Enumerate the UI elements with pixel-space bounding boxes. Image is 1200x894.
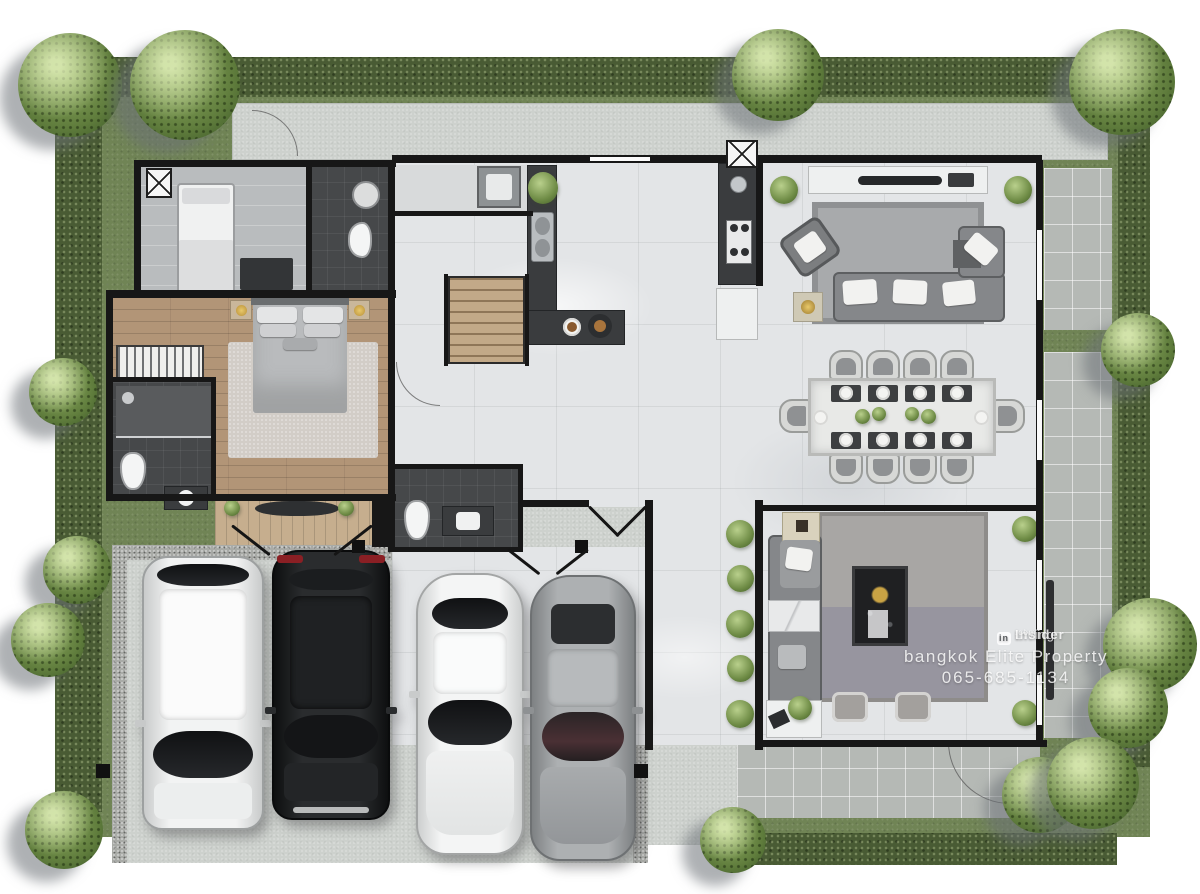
bed-headboard: [251, 297, 349, 305]
plate: [950, 433, 964, 447]
front-trim: [293, 807, 369, 814]
hedge-left: [55, 57, 102, 812]
side-mirror: [632, 707, 643, 714]
side-mirror: [386, 707, 397, 714]
roof: [433, 632, 506, 694]
carport-edge-left: [112, 545, 127, 863]
wall: [106, 290, 396, 298]
burner: [730, 248, 738, 256]
pouf: [895, 692, 931, 722]
bed-pillow: [303, 307, 343, 323]
tree: [43, 536, 111, 604]
windshield: [542, 712, 625, 761]
tree: [29, 358, 97, 426]
window: [1037, 400, 1042, 460]
deck-bench: [255, 501, 339, 516]
wall: [134, 160, 141, 297]
maid-bed-blanket: [179, 240, 233, 293]
sofa-cushion: [942, 279, 976, 306]
taillight: [359, 555, 385, 563]
table-plant: [872, 407, 886, 421]
bar-sink: [730, 176, 747, 193]
powder-basin: [456, 512, 480, 530]
tree: [732, 29, 824, 121]
tree: [18, 33, 122, 137]
tree: [700, 807, 766, 873]
plate: [950, 386, 964, 400]
wall: [755, 500, 763, 750]
wall-plant: [1012, 516, 1038, 542]
carport-pillar: [96, 764, 110, 778]
shower-head: [122, 392, 134, 404]
taillight: [277, 555, 303, 563]
plate: [839, 386, 853, 400]
planter-plant: [726, 520, 754, 548]
side-mirror: [523, 707, 534, 714]
staircase: [448, 276, 525, 364]
tree: [11, 603, 85, 677]
living-insider-logo-icon: in: [997, 632, 1011, 645]
wall: [392, 155, 1042, 163]
plate: [876, 386, 890, 400]
tree: [1047, 737, 1139, 829]
dining-chair: [829, 454, 863, 484]
hood: [284, 763, 378, 801]
sofa-cushion: [892, 279, 927, 305]
dining-chair: [903, 350, 937, 380]
burner: [741, 224, 749, 232]
wall: [762, 505, 1042, 511]
roof: [547, 649, 619, 706]
table-plant: [905, 407, 919, 421]
sunroof: [551, 604, 615, 644]
tree: [25, 791, 103, 869]
wall-plant: [1012, 700, 1038, 726]
dining-chair-end: [779, 399, 811, 433]
planter-plant: [727, 565, 754, 592]
roof: [290, 596, 373, 709]
wall: [518, 464, 523, 552]
table-plant: [921, 409, 936, 424]
floor-plan: inLiving Insider.com bangkok Elite Prope…: [0, 0, 1200, 894]
tree: [1069, 29, 1175, 135]
wall: [106, 290, 113, 501]
dining-chair: [940, 350, 974, 380]
kitchen-cabinet: [716, 288, 758, 340]
family-art-detail: [868, 610, 888, 638]
dining-chair-end: [993, 399, 1025, 433]
watermark-phone: 065-685-1134: [900, 668, 1112, 688]
wardrobe: [116, 345, 204, 381]
kitchen-plant: [528, 172, 558, 204]
tree: [130, 30, 240, 140]
bed-pillow: [260, 324, 296, 337]
tree: [1101, 313, 1175, 387]
ac-unit: [146, 168, 172, 198]
powder-toilet: [404, 500, 430, 540]
planter-plant: [726, 700, 754, 728]
silver-sedan: [530, 575, 636, 861]
nightstand-lamp: [236, 305, 247, 316]
plate: [913, 433, 927, 447]
dining-chair: [903, 454, 937, 484]
watermark-line2: bangkok Elite Property: [900, 647, 1112, 667]
window: [1037, 560, 1042, 630]
kitchen-sink-basin: [535, 239, 550, 257]
plate: [876, 433, 890, 447]
kitchen-sink-basin: [535, 217, 550, 235]
wall: [106, 494, 396, 501]
ensuite-toilet: [120, 452, 146, 490]
wall: [211, 377, 216, 501]
window: [1037, 230, 1042, 300]
kitchen-food: [594, 320, 606, 332]
window: [590, 157, 650, 161]
side-mirror: [265, 707, 276, 714]
dining-chair: [866, 350, 900, 380]
deck-plant: [338, 500, 354, 516]
wall: [134, 160, 396, 167]
black-suv: [272, 550, 390, 820]
carport-pillar: [634, 764, 648, 778]
watermark-brand: inLiving Insider.com: [900, 628, 1112, 645]
pouf: [832, 692, 868, 722]
sofa-cushion: [785, 546, 814, 571]
plate: [839, 433, 853, 447]
wall: [755, 740, 1047, 747]
wall: [523, 500, 589, 507]
living-plant-right: [1004, 176, 1032, 204]
maid-bath-sink: [352, 181, 380, 209]
plate: [913, 386, 927, 400]
stair-rail: [444, 274, 448, 366]
windshield: [428, 700, 512, 745]
nightstand-lamp: [354, 305, 365, 316]
av-equipment: [948, 173, 974, 187]
family-lamp-core: [796, 520, 808, 532]
wall: [306, 160, 312, 297]
carport-pillar: [352, 540, 365, 553]
roof: [159, 589, 247, 721]
bed-pillow: [257, 307, 297, 323]
rear-window: [289, 569, 374, 591]
watermark: inLiving Insider.com bangkok Elite Prope…: [900, 628, 1112, 687]
deck-plant: [224, 500, 240, 516]
table-plant: [855, 409, 870, 424]
living-plant-left: [770, 176, 798, 204]
sofa-cushion: [842, 279, 878, 305]
back-walkway: [232, 103, 1108, 160]
bed-accent-pillow: [283, 338, 317, 350]
wall: [392, 211, 533, 216]
plate-end: [974, 410, 989, 425]
family-side-table: [768, 600, 820, 632]
wall: [106, 377, 215, 382]
wall: [392, 464, 523, 469]
wall: [372, 494, 392, 547]
bed-pillow: [304, 324, 340, 337]
tv: [858, 176, 942, 185]
planter-plant: [726, 610, 754, 638]
maid-bed-pillow: [182, 188, 230, 204]
hedge-bottom: [745, 833, 1117, 865]
stair-rail: [525, 274, 529, 366]
utility-sink-basin: [486, 174, 512, 200]
hood: [426, 751, 515, 836]
wall: [645, 500, 653, 750]
windshield: [284, 715, 378, 758]
dining-chair: [829, 350, 863, 380]
planter-plant: [727, 655, 754, 682]
hood: [540, 767, 627, 844]
side-mirror: [409, 691, 420, 698]
family-console-plant: [788, 696, 812, 720]
ac-unit: [726, 140, 758, 168]
side-mirror: [135, 720, 146, 727]
plate-end: [813, 410, 828, 425]
dining-chair: [940, 454, 974, 484]
white-sedan: [416, 573, 524, 855]
side-mirror: [260, 720, 271, 727]
burner: [741, 248, 749, 256]
dining-chair: [866, 454, 900, 484]
wall: [756, 160, 763, 286]
maid-bath-toilet: [348, 222, 372, 258]
wall: [392, 547, 523, 552]
hood: [154, 783, 252, 819]
white-suv: [142, 556, 264, 830]
rear-window: [157, 564, 250, 586]
windshield: [153, 731, 253, 778]
lamp-glow: [801, 300, 815, 314]
sofa-cushion: [778, 645, 806, 669]
maid-room-rug: [240, 258, 293, 290]
rear-window: [432, 598, 508, 629]
kitchen-food: [567, 322, 577, 332]
burner: [730, 224, 738, 232]
side-patio-upper: [1044, 168, 1112, 330]
